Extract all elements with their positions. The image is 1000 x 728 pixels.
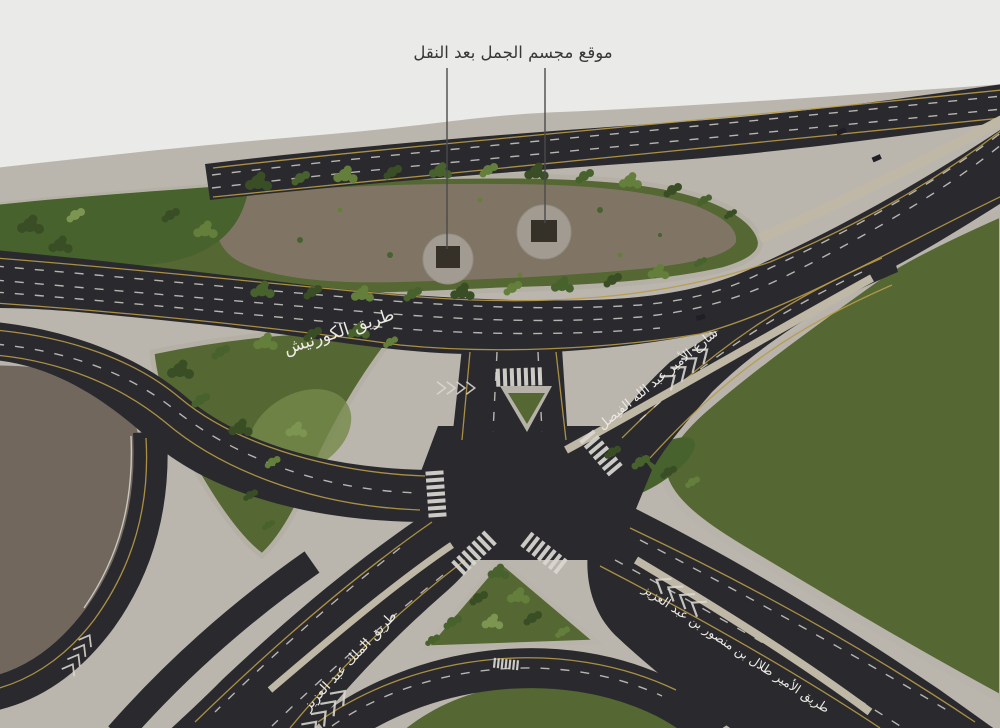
texture-overlay bbox=[0, 0, 1000, 728]
annotation-label: موقع مجسم الجمل بعد النقل bbox=[413, 43, 612, 63]
interchange-plan-svg: موقع مجسم الجمل بعد النقل طريق الكورنيش … bbox=[0, 0, 1000, 728]
site-plan-rendering: موقع مجسم الجمل بعد النقل طريق الكورنيش … bbox=[0, 0, 1000, 728]
